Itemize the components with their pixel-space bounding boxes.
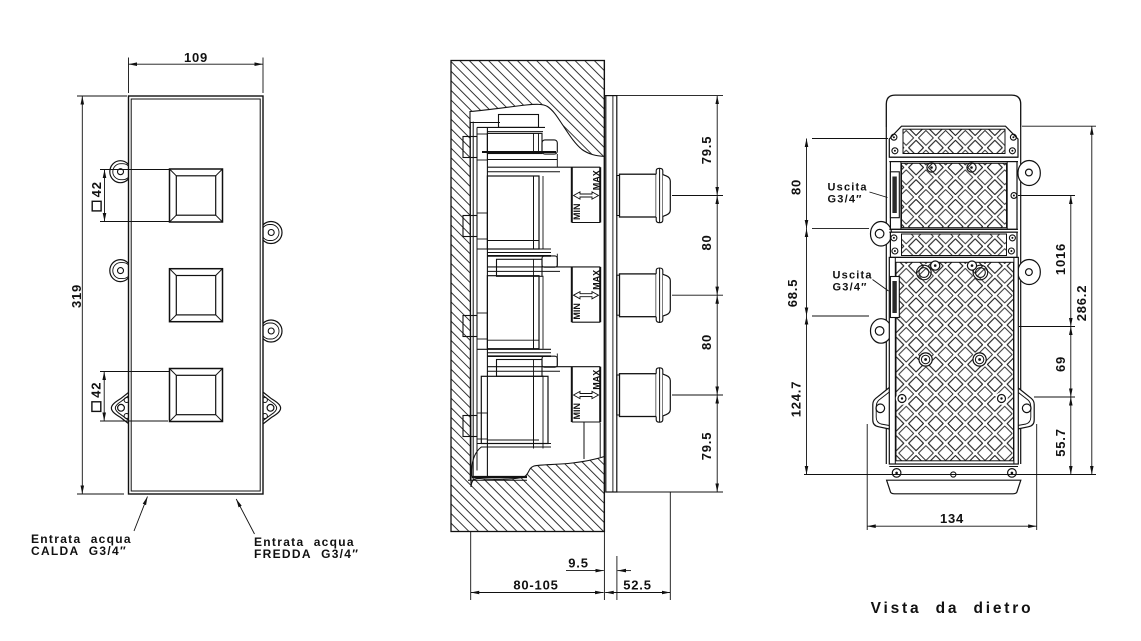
svg-text:CALDA G3/4″: CALDA G3/4″ [31, 544, 127, 558]
svg-text:42: 42 [89, 382, 104, 398]
svg-text:G3/4″: G3/4″ [828, 194, 863, 206]
svg-text:55.7: 55.7 [1053, 428, 1068, 457]
svg-text:MIN: MIN [572, 403, 582, 420]
svg-text:MAX: MAX [592, 370, 602, 390]
svg-text:MAX: MAX [592, 170, 602, 190]
svg-text:42: 42 [89, 181, 104, 197]
svg-text:52.5: 52.5 [623, 578, 652, 593]
svg-text:69: 69 [1053, 356, 1068, 372]
svg-text:79.5: 79.5 [699, 136, 714, 165]
svg-text:MIN: MIN [572, 203, 582, 220]
svg-text:Uscita: Uscita [828, 182, 868, 194]
svg-text:MIN: MIN [572, 303, 582, 320]
svg-text:G3/4″: G3/4″ [833, 282, 868, 294]
svg-text:79.5: 79.5 [699, 432, 714, 461]
svg-text:9.5: 9.5 [568, 556, 588, 571]
svg-text:80: 80 [699, 334, 714, 350]
svg-text:Uscita: Uscita [833, 270, 873, 282]
svg-text:68.5: 68.5 [785, 279, 800, 308]
svg-text:134: 134 [940, 511, 964, 526]
svg-text:286.2: 286.2 [1074, 285, 1089, 322]
svg-text:1016: 1016 [1053, 243, 1068, 275]
svg-text:80-105: 80-105 [513, 578, 558, 593]
svg-text:80: 80 [699, 234, 714, 250]
svg-text:80: 80 [789, 179, 804, 195]
svg-text:124.7: 124.7 [789, 381, 804, 418]
svg-text:FREDDA G3/4″: FREDDA G3/4″ [254, 547, 359, 561]
svg-text:109: 109 [184, 50, 208, 65]
svg-text:319: 319 [69, 284, 84, 308]
svg-text:MAX: MAX [592, 270, 602, 290]
svg-text:Vista da dietro: Vista da dietro [871, 600, 1034, 617]
